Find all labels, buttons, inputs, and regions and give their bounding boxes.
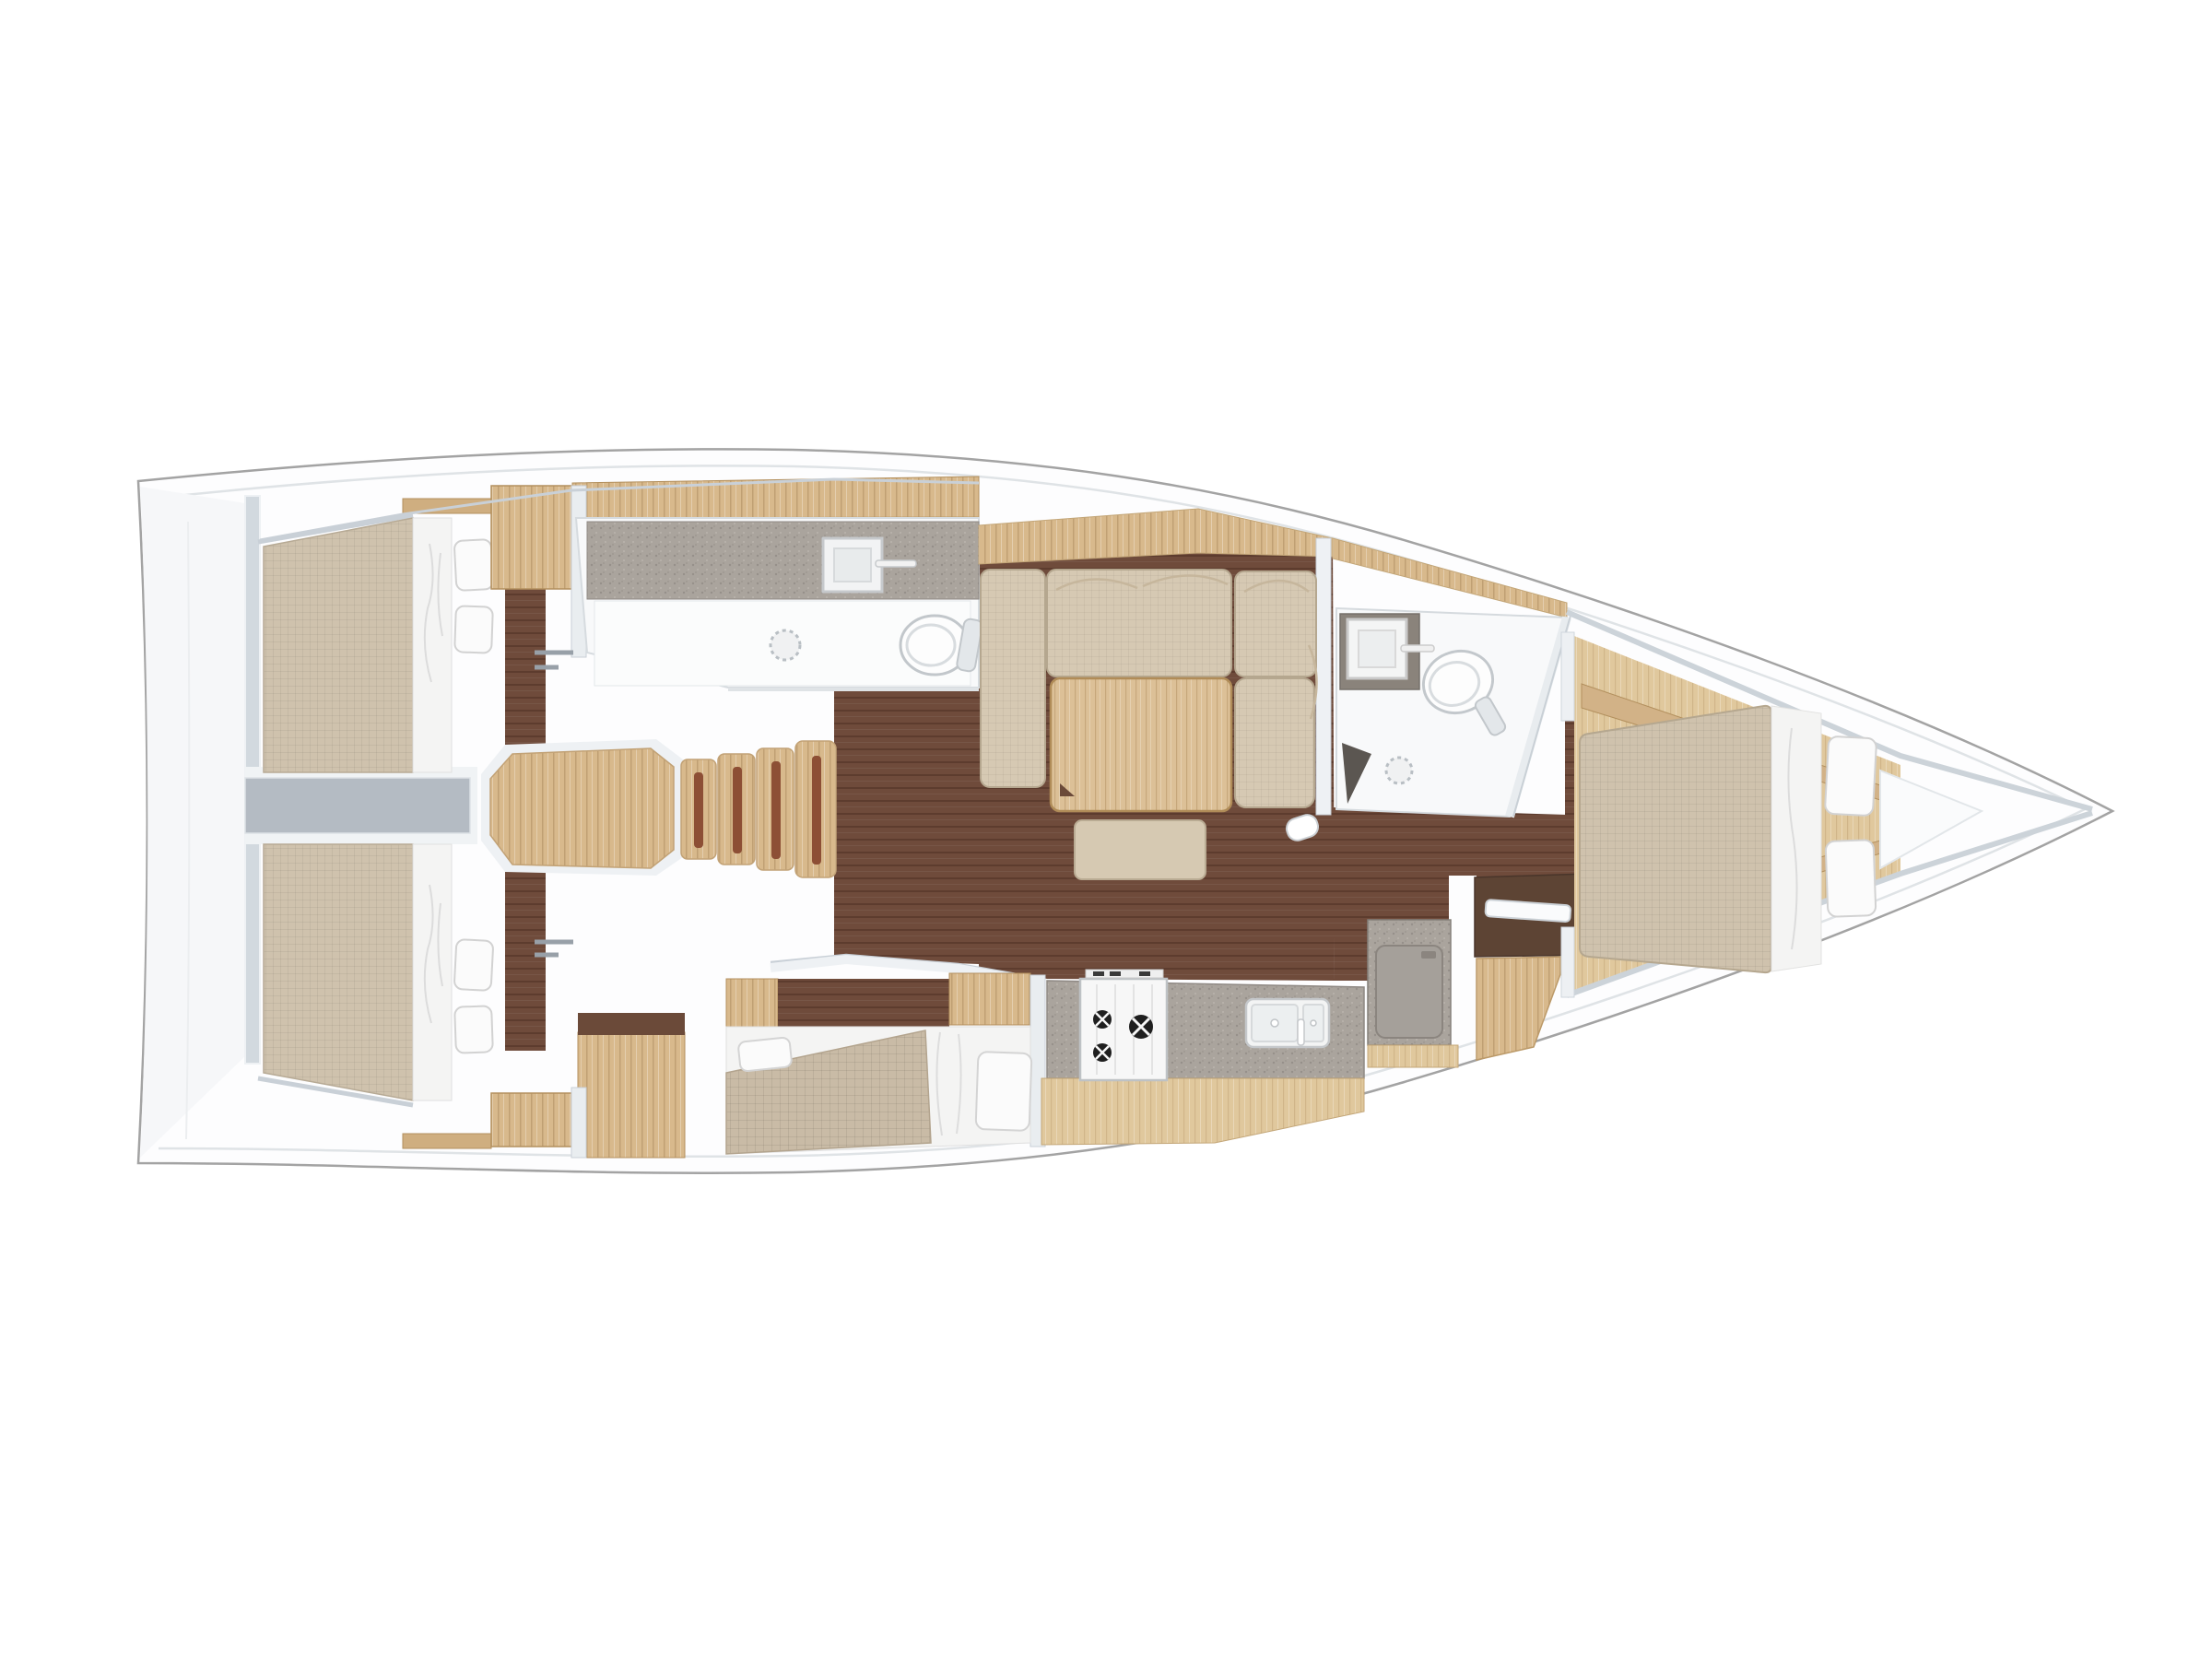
- shelf: [403, 1134, 491, 1148]
- wardrobe: [491, 1093, 572, 1147]
- berth-linen: [413, 844, 452, 1100]
- fridge-lid: [1376, 946, 1442, 1038]
- stern-deck-shading: [140, 487, 245, 1158]
- aft-head: [576, 518, 983, 689]
- saloon-table: [1051, 678, 1231, 811]
- step-grip: [694, 772, 703, 848]
- folding-table: [1051, 678, 1231, 811]
- faucet: [1298, 1019, 1304, 1045]
- header-panel-dark: [778, 979, 949, 1027]
- fridge-handle: [1421, 951, 1436, 959]
- yacht-floor-plan-svg: [0, 0, 2212, 1659]
- berth-linen: [1771, 706, 1821, 971]
- pillow: [976, 1052, 1032, 1131]
- header-cabinet: [726, 979, 778, 1027]
- shower-drain: [771, 630, 800, 660]
- aft-cabin-port-floor: [505, 566, 546, 774]
- header-cabinet: [949, 973, 1030, 1025]
- head-counter: [587, 522, 979, 599]
- pillow: [737, 1037, 792, 1072]
- shower-drain: [1386, 758, 1412, 783]
- stove-knob: [1139, 971, 1150, 976]
- cabinet-box-top: [578, 1013, 685, 1035]
- galley-sink: [1246, 999, 1329, 1047]
- pillow: [454, 1006, 493, 1053]
- fridge: [1368, 920, 1451, 1045]
- sink-basin: [1359, 630, 1395, 667]
- sink-basin: [834, 548, 871, 582]
- companionway: [481, 739, 836, 877]
- galley-front-panel: [1041, 1078, 1364, 1145]
- bulkhead: [1561, 632, 1574, 721]
- pillow: [454, 606, 493, 653]
- midship-berth: [726, 955, 1045, 1154]
- step-grip: [812, 756, 821, 865]
- pillow: [1825, 736, 1877, 817]
- sink-drain: [1271, 1019, 1278, 1027]
- sofa-chaise-right: [1235, 678, 1314, 807]
- sofa-back: [1047, 570, 1231, 677]
- stove-body: [1080, 979, 1167, 1080]
- step-grip: [733, 767, 742, 853]
- double-berth-mattress: [264, 518, 413, 772]
- faucet: [1401, 645, 1434, 652]
- sofa-chaise-left: [981, 570, 1045, 787]
- saloon-floor-aft: [834, 689, 979, 964]
- bulkhead: [1561, 927, 1574, 997]
- pillow: [1826, 840, 1877, 917]
- engine-corridor: [245, 778, 470, 833]
- stove: [1080, 970, 1167, 1080]
- island-berth-mattress: [1580, 706, 1771, 972]
- double-berth-mattress: [264, 844, 413, 1100]
- companionway-landing: [490, 748, 674, 868]
- stove-knob: [1110, 971, 1121, 976]
- ottoman-bench: [1075, 820, 1206, 879]
- stove-knob: [1093, 971, 1104, 976]
- sofa-end-wall: [1316, 538, 1331, 815]
- cabin-wall: [571, 1088, 586, 1158]
- pillow: [454, 939, 494, 991]
- faucet: [876, 560, 916, 567]
- fridge-front-panel: [1368, 1045, 1458, 1067]
- sink-drain: [1311, 1020, 1316, 1026]
- pillow: [454, 539, 494, 591]
- cabinet-box: [578, 1032, 685, 1158]
- yacht-floor-plan: [0, 0, 2212, 1659]
- step-grip: [771, 761, 781, 859]
